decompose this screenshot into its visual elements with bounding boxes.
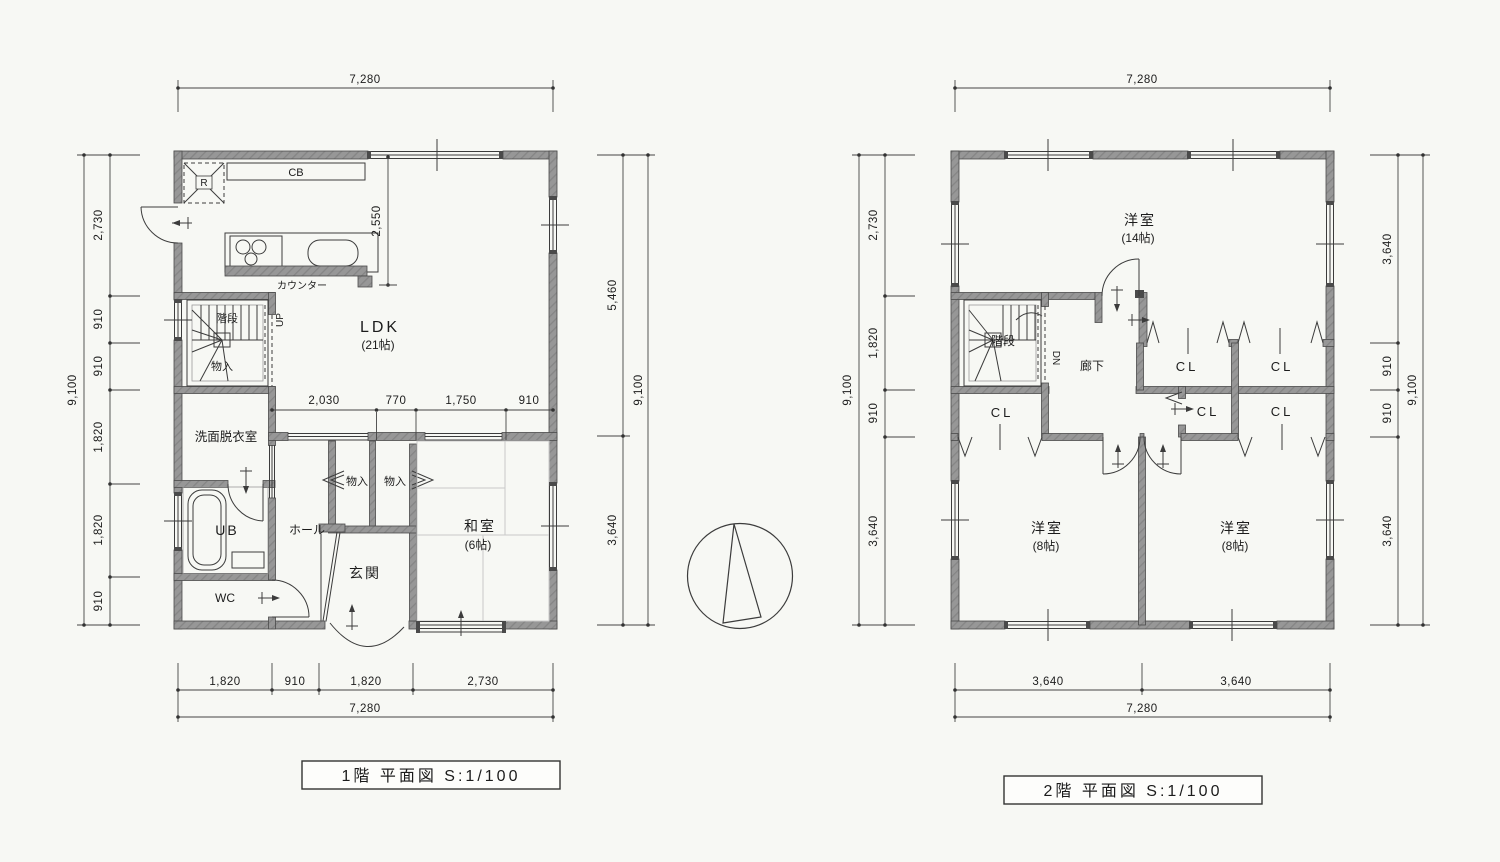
fridge-label: R bbox=[200, 178, 207, 189]
f2-dim-bottom-1: 3,640 bbox=[1220, 676, 1251, 688]
floor2-title-box: 2階 平面図 S:1/100 bbox=[1004, 776, 1262, 804]
f1-dim-bottom-0: 1,820 bbox=[209, 676, 240, 688]
cl-upper-left-label: CL bbox=[1176, 359, 1199, 374]
hall-label: ホール bbox=[289, 523, 325, 537]
f2-dim-left-total: 9,100 bbox=[842, 374, 854, 405]
cl-lower-left-label: CL bbox=[1197, 404, 1220, 419]
room8-right-size-label: (8帖) bbox=[1222, 538, 1249, 553]
closet-right-label: 物入 bbox=[384, 474, 406, 488]
room8-left-label: 洋室 bbox=[1031, 520, 1063, 536]
f2-dim-left-3: 3,640 bbox=[868, 515, 880, 546]
kitchen-service-door bbox=[141, 207, 178, 243]
kitchen-fixtures: CB R カウンター bbox=[184, 155, 397, 292]
f2-dim-left-1: 1,820 bbox=[868, 327, 880, 358]
closet-left-label: 物入 bbox=[346, 474, 368, 488]
room8-right-label: 洋室 bbox=[1220, 520, 1252, 536]
kitchen-depth-dimension: 2,550 bbox=[371, 155, 397, 287]
f1-dim-right-total: 9,100 bbox=[633, 374, 645, 405]
stair-storage-label: 物入 bbox=[211, 359, 233, 373]
f2-dim-right-2: 910 bbox=[1382, 403, 1394, 424]
ldk-label: LDK bbox=[360, 319, 400, 336]
f1-dim-left-1: 910 bbox=[93, 309, 105, 330]
f2-dim-right-total: 9,100 bbox=[1407, 374, 1419, 405]
room8-left-size-label: (8帖) bbox=[1033, 538, 1060, 553]
washitsu-label: 和室 bbox=[464, 518, 496, 534]
floor1-title: 1階 平面図 S:1/100 bbox=[342, 767, 521, 785]
senmen-label: 洗面脱衣室 bbox=[195, 429, 258, 444]
floor1-dimensions: 7,280 2,730 910 910 1,820 1,820 910 9,10… bbox=[67, 74, 655, 722]
f2-dim-right-1: 910 bbox=[1382, 356, 1394, 377]
cl-lower-right-label: CL bbox=[1271, 404, 1294, 419]
f2-dim-top-total: 7,280 bbox=[1126, 74, 1157, 86]
floor2-plan: 階段 DN bbox=[842, 74, 1430, 804]
f1-dim-left-0: 2,730 bbox=[93, 209, 105, 240]
room8-left-door bbox=[1103, 437, 1140, 474]
f1-dim-left-4: 1,820 bbox=[93, 514, 105, 545]
dn-label: DN bbox=[1050, 351, 1061, 365]
washitsu-size-label: (6帖) bbox=[465, 537, 492, 552]
f1-dim-bottom-3: 2,730 bbox=[467, 676, 498, 688]
f1-dim-bottom-total: 7,280 bbox=[349, 703, 380, 715]
ub-label: UB bbox=[215, 522, 238, 538]
f2-dim-left-0: 2,730 bbox=[868, 209, 880, 240]
f1-dim-left-3: 1,820 bbox=[93, 421, 105, 452]
washroom-sliding-door bbox=[270, 445, 275, 498]
f2-dim-right-0: 3,640 bbox=[1382, 233, 1394, 264]
entrance-door bbox=[323, 532, 404, 647]
f1-dim-inner-2: 1,750 bbox=[445, 395, 476, 407]
f1-dim-left-total: 9,100 bbox=[67, 374, 79, 405]
room14-size-label: (14帖) bbox=[1121, 230, 1154, 245]
f2-dim-left-2: 910 bbox=[868, 403, 880, 424]
floor1-plan: CB R カウンター bbox=[67, 74, 655, 789]
cb-label: CB bbox=[288, 167, 303, 179]
up-label: UP bbox=[275, 313, 286, 327]
f1-dim-left-5: 910 bbox=[93, 591, 105, 612]
floor2-title: 2階 平面図 S:1/100 bbox=[1044, 782, 1223, 800]
f1-dim-right-0: 5,460 bbox=[607, 279, 619, 310]
cl-upper-right-label: CL bbox=[1271, 359, 1294, 374]
floor-plan-drawing: CB R カウンター bbox=[0, 0, 1500, 862]
stairs-2f-label: 階段 bbox=[991, 333, 1015, 348]
north-compass bbox=[688, 524, 793, 629]
f1-dim-bottom-1: 910 bbox=[285, 676, 306, 688]
floor1-title-box: 1階 平面図 S:1/100 bbox=[302, 761, 560, 789]
f1-dim-inner-1: 770 bbox=[386, 395, 407, 407]
genkan-label: 玄関 bbox=[349, 565, 381, 581]
f1-dim-inner-0: 2,030 bbox=[308, 395, 339, 407]
stairs-2f: 階段 DN bbox=[964, 300, 1061, 386]
f1-dim-left-2: 910 bbox=[93, 356, 105, 377]
f2-dim-right-3: 3,640 bbox=[1382, 515, 1394, 546]
ldk-size-label: (21帖) bbox=[361, 337, 394, 352]
f2-dim-bottom-total: 7,280 bbox=[1126, 703, 1157, 715]
f1-dim-right-1: 3,640 bbox=[607, 514, 619, 545]
dim-2550: 2,550 bbox=[371, 205, 383, 236]
room14-label: 洋室 bbox=[1124, 212, 1156, 228]
wc-label: WC bbox=[215, 591, 235, 605]
counter-label: カウンター bbox=[277, 280, 327, 292]
stairs-1f-label: 階段 bbox=[216, 311, 238, 325]
f1-dim-inner-3: 910 bbox=[519, 395, 540, 407]
cl-west-label: CL bbox=[991, 405, 1014, 420]
kitchen-counter bbox=[225, 233, 378, 287]
hallway-label: 廊下 bbox=[1080, 358, 1104, 373]
refrigerator: R bbox=[184, 163, 224, 203]
f1-dim-top-total: 7,280 bbox=[349, 74, 380, 86]
floor-plan-sheet: CB R カウンター bbox=[0, 0, 1500, 862]
f2-dim-bottom-0: 3,640 bbox=[1032, 676, 1063, 688]
f1-dim-bottom-2: 1,820 bbox=[350, 676, 381, 688]
